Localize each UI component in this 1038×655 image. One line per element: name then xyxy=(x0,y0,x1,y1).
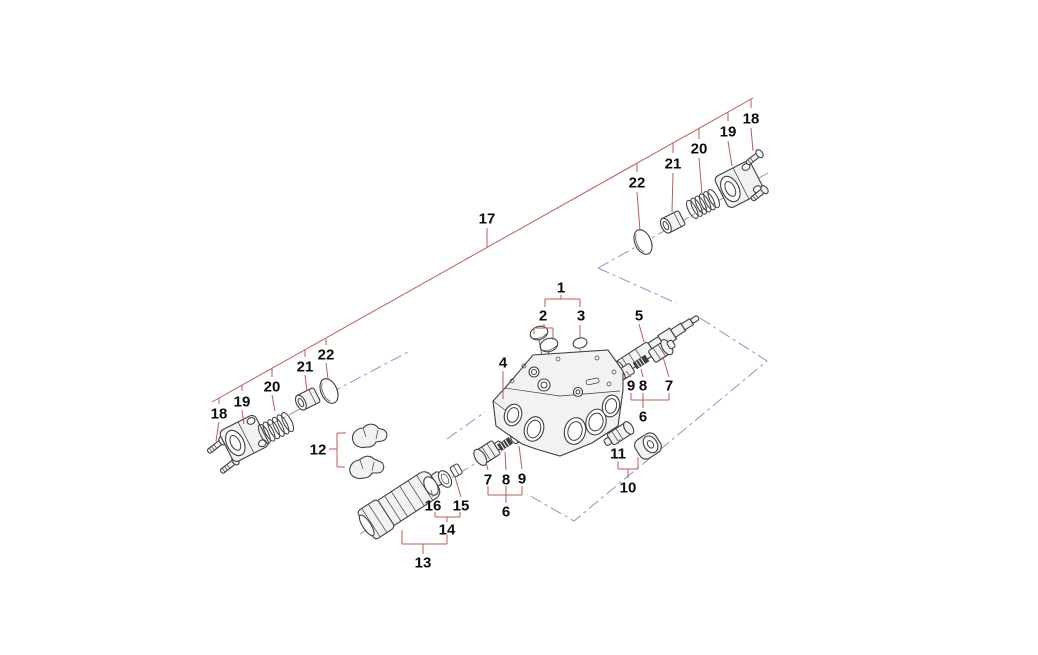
callout-19-29: 19 xyxy=(720,124,737,141)
callout-18-30: 18 xyxy=(743,111,760,128)
callout-1-1: 1 xyxy=(557,280,565,297)
clip-12-b xyxy=(350,456,384,478)
centerlines xyxy=(228,173,768,534)
callout-9-14: 9 xyxy=(518,471,526,488)
callout-19-22: 19 xyxy=(234,394,251,411)
seat-22-top-right xyxy=(630,227,655,257)
end-cap-19-top-right xyxy=(713,160,765,209)
callout-4-4: 4 xyxy=(499,355,508,372)
callout-22-26: 22 xyxy=(629,175,646,192)
callout-9-6: 9 xyxy=(627,378,635,395)
callout-15-20: 15 xyxy=(453,498,470,515)
callout-6-9: 6 xyxy=(639,409,647,426)
callout-6-15: 6 xyxy=(502,504,510,521)
callout-13-17: 13 xyxy=(415,555,432,572)
exploded-view-svg: 1712345987611107896121314161518192021222… xyxy=(0,0,1038,655)
callout-3-3: 3 xyxy=(577,308,585,325)
callout-8-7: 8 xyxy=(639,378,647,395)
callout-21-24: 21 xyxy=(297,359,314,376)
callout-20-28: 20 xyxy=(691,141,708,158)
callout-labels: 1712345987611107896121314161518192021222… xyxy=(211,111,760,572)
callout-21-27: 21 xyxy=(665,156,682,173)
callout-10-11: 10 xyxy=(620,480,637,497)
callout-14-18: 14 xyxy=(439,522,456,539)
callout-2-2: 2 xyxy=(539,308,547,325)
callout-22-25: 22 xyxy=(318,347,335,364)
callout-7-12: 7 xyxy=(484,472,492,489)
callout-8-13: 8 xyxy=(502,472,510,489)
callout-11-10: 11 xyxy=(610,446,626,463)
fitting-7-lower xyxy=(471,436,506,467)
callout-20-23: 20 xyxy=(264,379,281,396)
retainer-15 xyxy=(450,463,463,477)
callout-17-0: 17 xyxy=(479,211,496,228)
callout-5-5: 5 xyxy=(635,308,643,325)
screw-18-top-right-a xyxy=(744,148,765,167)
callout-18-21: 18 xyxy=(211,406,228,423)
callout-12-16: 12 xyxy=(310,442,327,459)
cap-10 xyxy=(632,430,664,462)
callout-16-19: 16 xyxy=(425,498,442,515)
plug-3 xyxy=(572,336,588,349)
spring-20-top-right xyxy=(684,188,722,220)
parts-diagram-canvas: 1712345987611107896121314161518192021222… xyxy=(0,0,1038,655)
piston-21-top-right xyxy=(658,210,685,234)
clip-12-a xyxy=(352,424,386,447)
callout-7-8: 7 xyxy=(665,378,673,395)
spring-8-lower xyxy=(498,438,513,451)
